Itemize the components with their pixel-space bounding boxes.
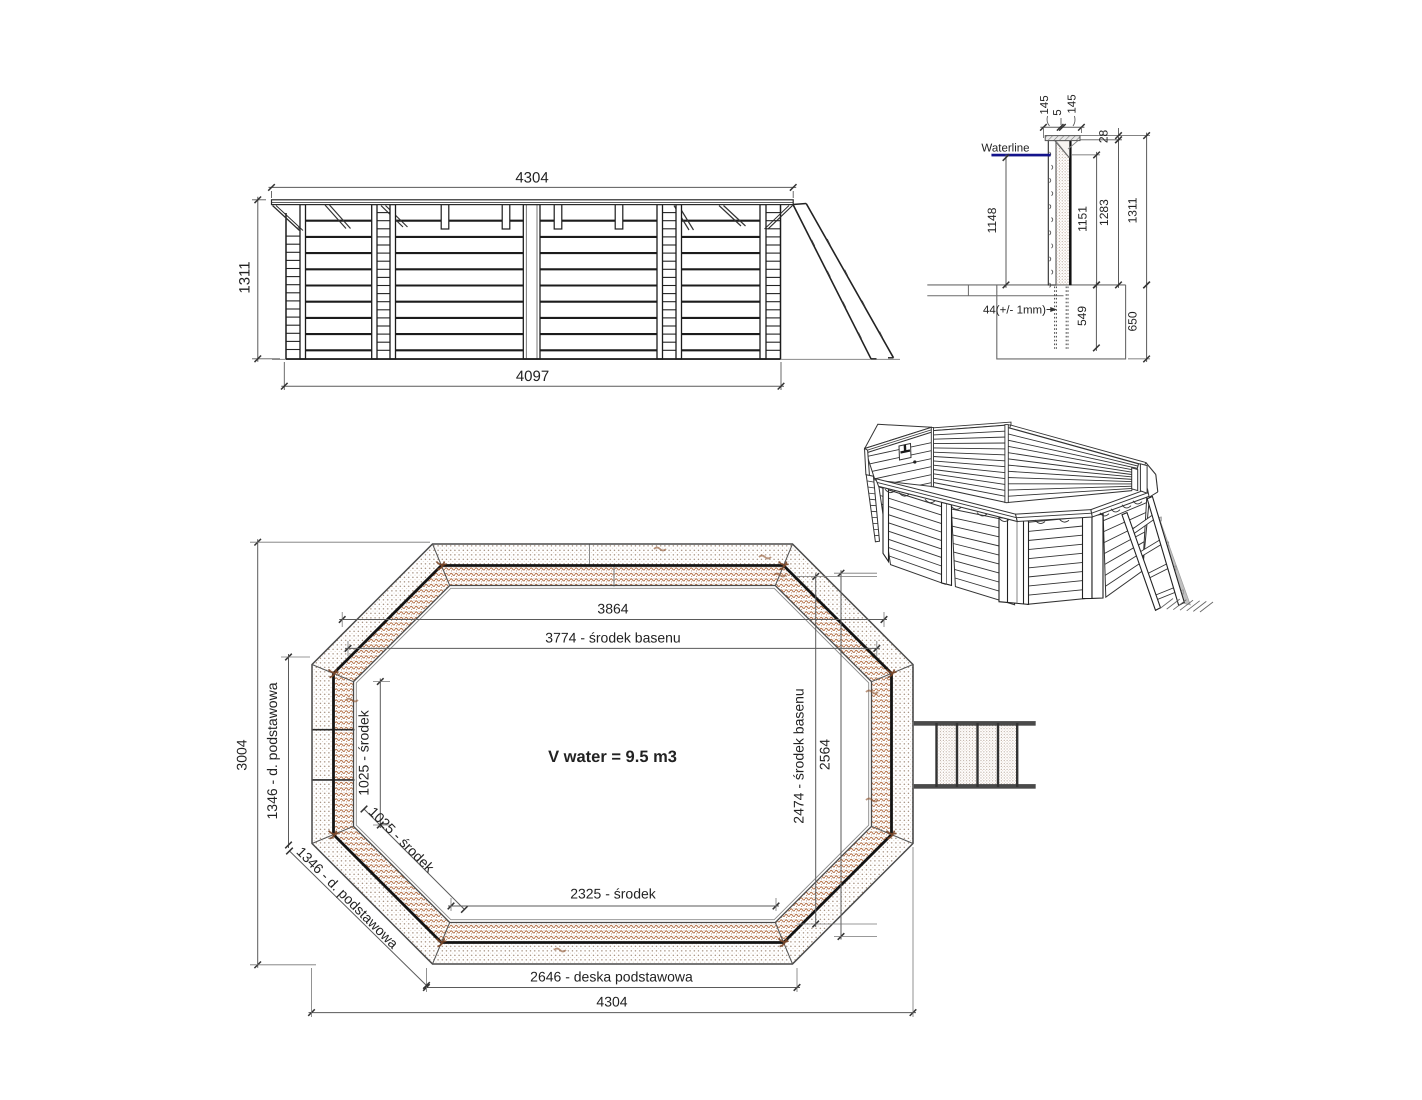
svg-text:1148: 1148	[985, 207, 999, 233]
svg-text:650: 650	[1126, 311, 1140, 331]
svg-text:1025 - środek: 1025 - środek	[356, 709, 372, 796]
svg-text:145: 145	[1039, 95, 1051, 114]
svg-text:4304: 4304	[596, 994, 627, 1010]
svg-text:3774 - środek basenu: 3774 - środek basenu	[545, 630, 680, 646]
svg-text:2325 - środek: 2325 - środek	[570, 886, 657, 902]
svg-text:2564: 2564	[817, 739, 833, 770]
svg-text:V water = 9.5 m3: V water = 9.5 m3	[548, 748, 677, 766]
svg-text:Waterline: Waterline	[981, 143, 1029, 155]
svg-text:4097: 4097	[516, 368, 549, 385]
svg-text:3004: 3004	[234, 739, 250, 770]
svg-text:1311: 1311	[1126, 197, 1140, 223]
svg-text:3864: 3864	[597, 601, 628, 617]
svg-text:28: 28	[1097, 130, 1111, 144]
svg-text:1151: 1151	[1076, 206, 1090, 232]
svg-text:1283: 1283	[1097, 199, 1111, 226]
svg-text:1346 - d. podstawowa: 1346 - d. podstawowa	[264, 682, 280, 819]
svg-text:4304: 4304	[515, 169, 548, 186]
svg-text:2474 - środek basenu: 2474 - środek basenu	[791, 688, 807, 823]
svg-text:145: 145	[1066, 94, 1078, 113]
svg-text:5: 5	[1052, 109, 1064, 115]
svg-text:549: 549	[1075, 306, 1089, 326]
svg-text:2646 - deska podstawowa: 2646 - deska podstawowa	[530, 969, 693, 985]
svg-text:44(+/- 1mm): 44(+/- 1mm)	[983, 305, 1046, 317]
svg-text:1311: 1311	[237, 261, 254, 293]
